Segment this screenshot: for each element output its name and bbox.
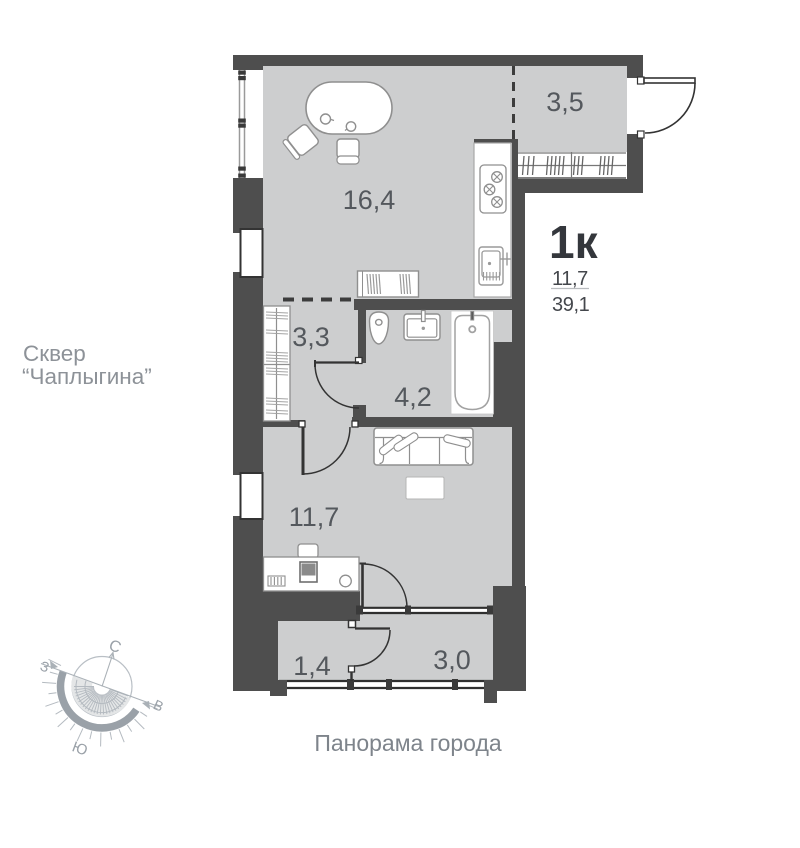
svg-text:“Чаплыгина”: “Чаплыгина” [22, 364, 152, 389]
svg-text:Сквер: Сквер [23, 341, 86, 366]
svg-text:3,5: 3,5 [546, 87, 584, 117]
svg-text:В: В [151, 696, 166, 714]
svg-text:Панорама города: Панорама города [314, 730, 502, 756]
svg-text:16,4: 16,4 [343, 185, 396, 215]
svg-text:4,2: 4,2 [394, 382, 432, 412]
svg-text:С: С [106, 637, 123, 657]
svg-text:1к: 1к [549, 216, 599, 268]
svg-text:3,3: 3,3 [292, 322, 330, 352]
svg-text:1,4: 1,4 [293, 651, 331, 681]
svg-text:11,7: 11,7 [552, 268, 588, 290]
svg-text:Ю: Ю [70, 738, 90, 759]
svg-text:3,0: 3,0 [433, 645, 471, 675]
svg-text:39,1: 39,1 [552, 294, 590, 316]
svg-text:11,7: 11,7 [289, 502, 340, 532]
